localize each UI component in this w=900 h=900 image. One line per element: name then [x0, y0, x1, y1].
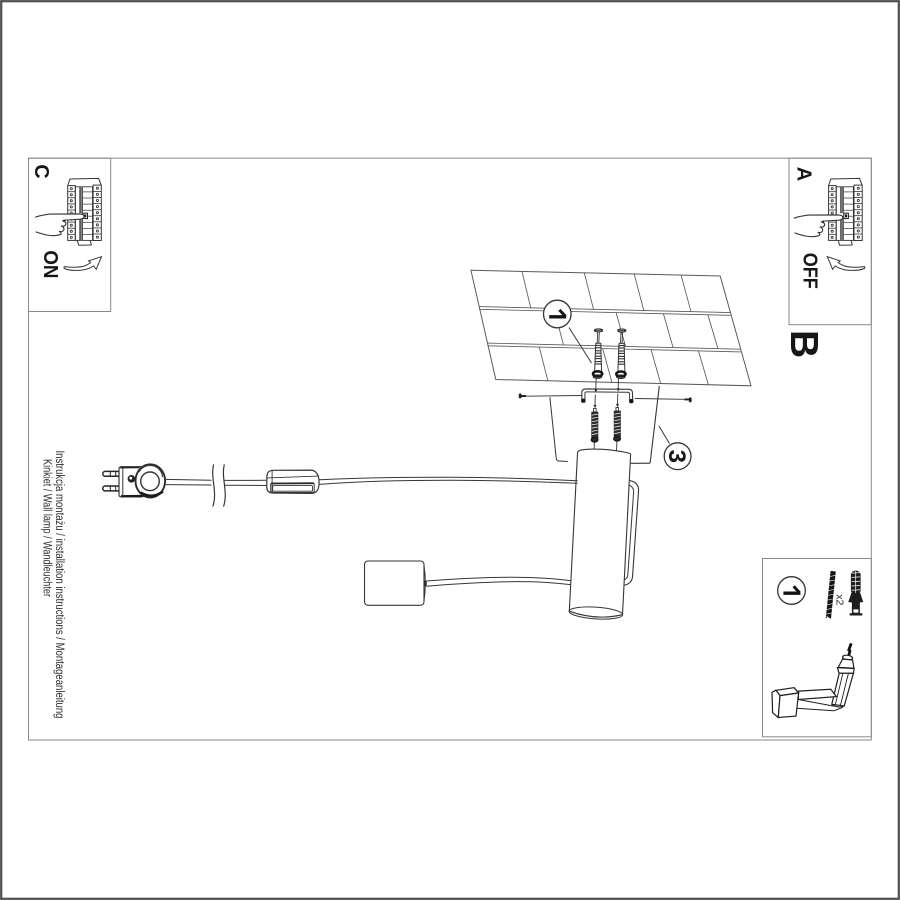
svg-text:ON: ON	[39, 250, 61, 278]
svg-text:C: C	[30, 164, 52, 178]
svg-text:B: B	[782, 330, 825, 358]
svg-text:3: 3	[663, 450, 690, 463]
svg-text:Instrukcja montażu / installat: Instrukcja montażu / installation instru…	[53, 451, 65, 719]
svg-text:OFF: OFF	[799, 253, 821, 289]
svg-text:x2: x2	[834, 594, 846, 605]
svg-text:A: A	[793, 167, 815, 181]
svg-text:Kinkiet / Wall lamp / Wandleuc: Kinkiet / Wall lamp / Wandleuchter	[40, 459, 52, 597]
